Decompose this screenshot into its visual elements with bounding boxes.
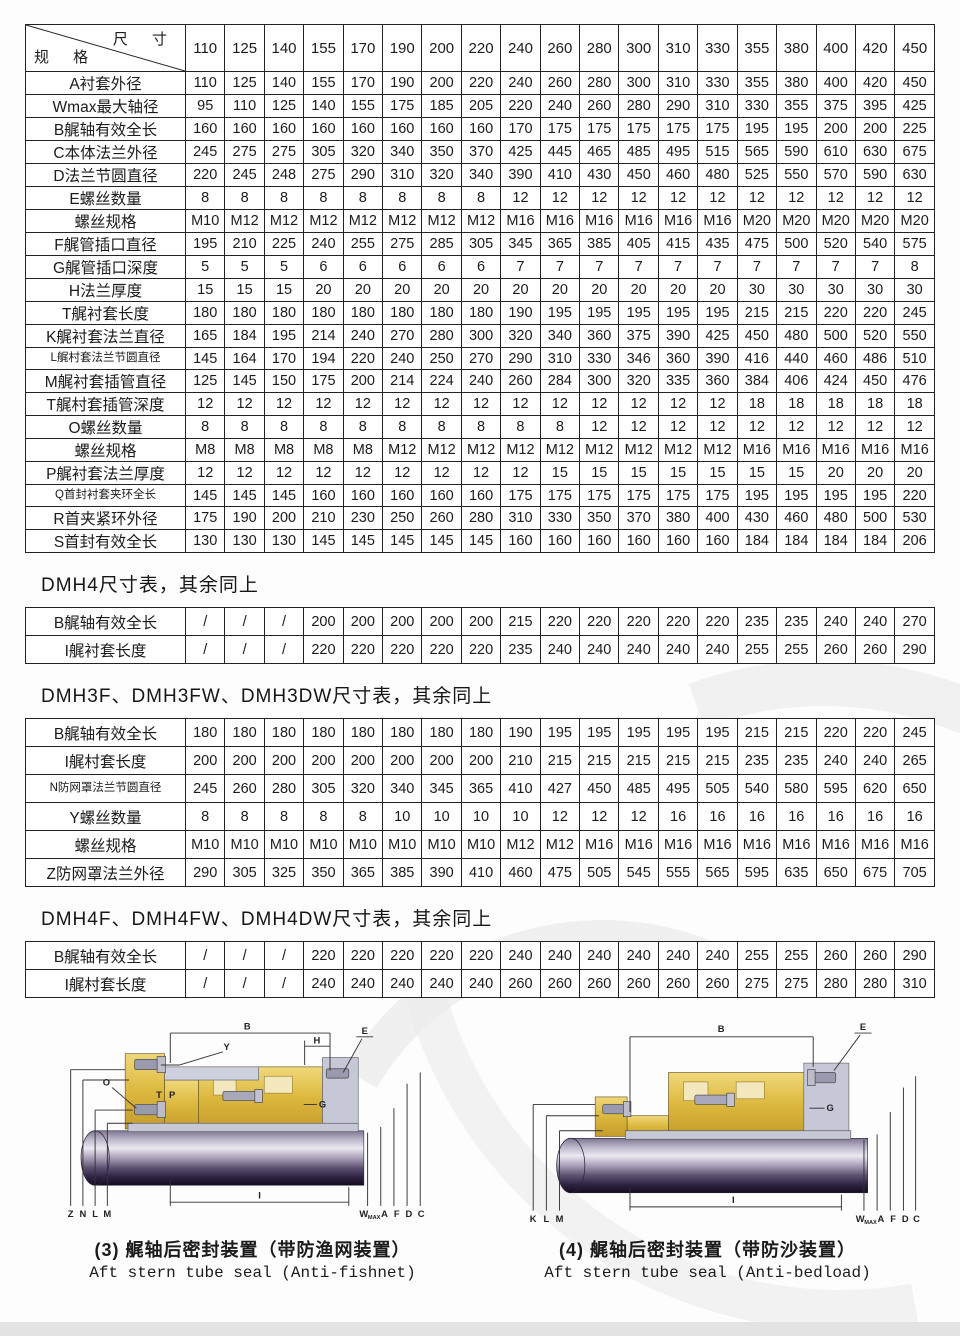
value-cell: 175 [186, 507, 225, 530]
value-cell: 20 [816, 462, 855, 485]
value-cell: 305 [304, 141, 343, 164]
size-column-header: 280 [580, 25, 619, 72]
value-cell: 310 [501, 507, 540, 530]
table-row: A衬套外径11012514015517019020022024026028030… [26, 72, 935, 95]
row-label: Z防网罩法兰外径 [26, 859, 186, 887]
value-cell: 214 [383, 370, 422, 393]
value-cell: 260 [501, 970, 540, 998]
value-cell: 240 [540, 942, 579, 970]
value-cell: 265 [895, 747, 935, 775]
value-cell: M12 [580, 439, 619, 462]
value-cell: 240 [343, 325, 382, 348]
value-cell: M16 [658, 831, 697, 859]
value-cell: 595 [737, 859, 776, 887]
value-cell: 375 [619, 325, 658, 348]
value-cell: 305 [225, 859, 264, 887]
value-cell: 195 [540, 719, 579, 747]
value-cell: 200 [343, 370, 382, 393]
value-cell: 300 [619, 72, 658, 95]
value-cell: 12 [895, 416, 935, 439]
value-cell: / [225, 970, 264, 998]
value-cell: 220 [343, 636, 382, 664]
value-cell: 175 [580, 118, 619, 141]
value-cell: 195 [698, 302, 737, 325]
value-cell: 8 [383, 187, 422, 210]
value-cell: M8 [264, 439, 303, 462]
table-row: L艉村套法兰节圆直径145164170194220240250270290310… [26, 348, 935, 370]
table-row: I艉村套长度2002002002002002002002002102152152… [26, 747, 935, 775]
value-cell: 610 [816, 141, 855, 164]
value-cell: 500 [816, 325, 855, 348]
value-cell: 460 [501, 859, 540, 887]
size-column-header: 110 [186, 25, 225, 72]
value-cell: 195 [737, 118, 776, 141]
value-cell: 160 [619, 530, 658, 553]
value-cell: 225 [264, 233, 303, 256]
value-cell: 180 [304, 302, 343, 325]
value-cell: M16 [698, 210, 737, 233]
value-cell: 160 [343, 118, 382, 141]
value-cell: 255 [737, 942, 776, 970]
value-cell: 200 [422, 747, 461, 775]
value-cell: 30 [895, 279, 935, 302]
value-cell: 475 [737, 233, 776, 256]
value-cell: 550 [777, 164, 816, 187]
value-cell: 525 [737, 164, 776, 187]
value-cell: 180 [225, 719, 264, 747]
value-cell: 215 [777, 302, 816, 325]
value-cell: 340 [540, 325, 579, 348]
value-cell: 555 [658, 859, 697, 887]
value-cell: 8 [304, 803, 343, 831]
label-G: G [319, 1098, 326, 1109]
value-cell: M20 [777, 210, 816, 233]
value-cell: 7 [698, 256, 737, 279]
value-cell: 245 [895, 719, 935, 747]
value-cell: 12 [304, 393, 343, 416]
value-cell: 280 [422, 325, 461, 348]
value-cell: 195 [737, 485, 776, 507]
corner-cell: 尺 寸规 格 [26, 25, 186, 72]
table-row: M艉衬套插管直径12514515017520021422424026028430… [26, 370, 935, 393]
value-cell: 8 [186, 416, 225, 439]
value-cell: / [264, 942, 303, 970]
size-column-header: 170 [343, 25, 382, 72]
value-cell: 415 [658, 233, 697, 256]
value-cell: 8 [540, 416, 579, 439]
value-cell: 12 [895, 187, 935, 210]
value-cell: M10 [186, 831, 225, 859]
row-label: F艉管插口直径 [26, 233, 186, 256]
size-column-header: 220 [461, 25, 500, 72]
value-cell: 460 [658, 164, 697, 187]
value-cell: 10 [501, 803, 540, 831]
value-cell: 12 [777, 187, 816, 210]
value-cell: 8 [422, 187, 461, 210]
value-cell: 12 [816, 416, 855, 439]
value-cell: 630 [895, 164, 935, 187]
table-row: I艉衬套长度///2202202202202202352402402402402… [26, 636, 935, 664]
value-cell: M8 [225, 439, 264, 462]
value-cell: M16 [619, 210, 658, 233]
value-cell: 200 [264, 507, 303, 530]
row-label: Wmax最大轴径 [26, 95, 186, 118]
value-cell: 365 [343, 859, 382, 887]
value-cell: 410 [540, 164, 579, 187]
label-C: C [418, 1208, 425, 1219]
value-cell: M16 [895, 831, 935, 859]
value-cell: 375 [816, 95, 855, 118]
caption-3-en: Aft stern tube seal (Anti-fishnet) [25, 1264, 480, 1282]
value-cell: 220 [383, 942, 422, 970]
row-label: O螺丝数量 [26, 416, 186, 439]
value-cell: 12 [580, 803, 619, 831]
value-cell: 200 [816, 118, 855, 141]
value-cell: 465 [580, 141, 619, 164]
value-cell: 12 [186, 462, 225, 485]
value-cell: 245 [186, 775, 225, 803]
value-cell: 260 [501, 370, 540, 393]
value-cell: 20 [304, 279, 343, 302]
value-cell: 260 [619, 970, 658, 998]
value-cell: 565 [737, 141, 776, 164]
value-cell: 12 [619, 187, 658, 210]
value-cell: 15 [186, 279, 225, 302]
value-cell: 520 [816, 233, 855, 256]
value-cell: 12 [580, 416, 619, 439]
value-cell: 220 [383, 636, 422, 664]
value-cell: 195 [658, 302, 697, 325]
value-cell: 240 [855, 747, 894, 775]
value-cell: 180 [264, 302, 303, 325]
value-cell: M10 [383, 831, 422, 859]
value-cell: 12 [540, 393, 579, 416]
size-column-header: 420 [855, 25, 894, 72]
value-cell: 220 [816, 302, 855, 325]
value-cell: 12 [619, 393, 658, 416]
value-cell: / [225, 942, 264, 970]
value-cell: 310 [658, 72, 697, 95]
value-cell: 12 [422, 462, 461, 485]
value-cell: 240 [658, 942, 697, 970]
value-cell: 260 [422, 507, 461, 530]
value-cell: 8 [304, 416, 343, 439]
row-label: M艉衬套插管直径 [26, 370, 186, 393]
value-cell: 160 [225, 118, 264, 141]
value-cell: 270 [895, 608, 935, 636]
value-cell: 305 [304, 775, 343, 803]
value-cell: 15 [698, 462, 737, 485]
value-cell: M16 [580, 210, 619, 233]
value-cell: 425 [501, 141, 540, 164]
value-cell: 12 [343, 462, 382, 485]
value-cell: 550 [895, 325, 935, 348]
value-cell: 220 [816, 719, 855, 747]
value-cell: 360 [580, 325, 619, 348]
row-label: B艉轴有效全长 [26, 118, 186, 141]
value-cell: 200 [225, 747, 264, 775]
row-label: L艉村套法兰节圆直径 [26, 348, 186, 370]
value-cell: 260 [658, 970, 697, 998]
value-cell: 460 [777, 507, 816, 530]
caption-4-zh: (4) 艉轴后密封装置（带防沙装置） [480, 1236, 935, 1262]
value-cell: 235 [501, 636, 540, 664]
value-cell: 240 [461, 970, 500, 998]
value-cell: 485 [619, 141, 658, 164]
value-cell: 390 [422, 859, 461, 887]
value-cell: 416 [737, 348, 776, 370]
value-cell: 476 [895, 370, 935, 393]
value-cell: 280 [580, 72, 619, 95]
row-label: B艉轴有效全长 [26, 719, 186, 747]
value-cell: 240 [816, 608, 855, 636]
value-cell: 395 [855, 95, 894, 118]
value-cell: 235 [777, 608, 816, 636]
value-cell: 240 [383, 348, 422, 370]
value-cell: 240 [580, 636, 619, 664]
value-cell: 240 [304, 970, 343, 998]
value-cell: M8 [304, 439, 343, 462]
value-cell: 12 [461, 393, 500, 416]
value-cell: 200 [304, 608, 343, 636]
label-Y: Y [224, 1041, 231, 1052]
column-header-row: 尺 寸规 格1101251401551701902002202402602803… [26, 25, 935, 72]
value-cell: 7 [619, 256, 658, 279]
value-cell: M12 [501, 439, 540, 462]
value-cell: 220 [186, 164, 225, 187]
value-cell: M12 [383, 439, 422, 462]
value-cell: 130 [225, 530, 264, 553]
row-label: S首封有效全长 [26, 530, 186, 553]
value-cell: / [264, 636, 303, 664]
value-cell: M10 [304, 831, 343, 859]
value-cell: 180 [422, 302, 461, 325]
value-cell: 140 [264, 72, 303, 95]
value-cell: 175 [501, 485, 540, 507]
value-cell: 7 [855, 256, 894, 279]
value-cell: 12 [855, 187, 894, 210]
row-label: Y螺丝数量 [26, 803, 186, 831]
size-column-header: 400 [816, 25, 855, 72]
value-cell: 180 [304, 719, 343, 747]
table-row: Z防网罩法兰外径29030532535036538539041046047550… [26, 859, 935, 887]
value-cell: 320 [422, 164, 461, 187]
value-cell: 255 [777, 636, 816, 664]
value-cell: 8 [343, 803, 382, 831]
value-cell: 160 [264, 118, 303, 141]
value-cell: 15 [658, 462, 697, 485]
value-cell: M12 [619, 439, 658, 462]
label-E: E [362, 1025, 368, 1036]
size-column-header: 260 [540, 25, 579, 72]
value-cell: 260 [540, 72, 579, 95]
value-cell: 400 [698, 507, 737, 530]
table-row: P艉衬套法兰厚度12121212121212121215151515151515… [26, 462, 935, 485]
value-cell: 350 [580, 507, 619, 530]
value-cell: M10 [225, 831, 264, 859]
label-F: F [890, 1213, 896, 1224]
value-cell: 510 [895, 348, 935, 370]
value-cell: 12 [422, 393, 461, 416]
row-label: D法兰节圆直径 [26, 164, 186, 187]
value-cell: 8 [264, 416, 303, 439]
value-cell: 8 [264, 803, 303, 831]
value-cell: 240 [855, 608, 894, 636]
value-cell: 220 [895, 485, 935, 507]
anti-bedload-drawing: B E G K L M I W MAX A F D C [480, 1018, 935, 1236]
value-cell: / [186, 942, 225, 970]
value-cell: 30 [855, 279, 894, 302]
value-cell: 200 [264, 747, 303, 775]
value-cell: 220 [304, 942, 343, 970]
value-cell: 305 [461, 233, 500, 256]
value-cell: 220 [540, 608, 579, 636]
value-cell: 18 [855, 393, 894, 416]
value-cell: 215 [540, 747, 579, 775]
value-cell: 6 [461, 256, 500, 279]
value-cell: 325 [264, 859, 303, 887]
value-cell: 8 [501, 416, 540, 439]
label-P: P [169, 1089, 175, 1100]
value-cell: 220 [461, 72, 500, 95]
value-cell: 170 [343, 72, 382, 95]
value-cell: 155 [304, 72, 343, 95]
value-cell: 175 [580, 485, 619, 507]
value-cell: 310 [540, 348, 579, 370]
value-cell: 260 [816, 942, 855, 970]
value-cell: 110 [186, 72, 225, 95]
value-cell: 5 [186, 256, 225, 279]
value-cell: 705 [895, 859, 935, 887]
value-cell: 220 [580, 608, 619, 636]
value-cell: 505 [580, 859, 619, 887]
value-cell: 430 [737, 507, 776, 530]
value-cell: M16 [501, 210, 540, 233]
value-cell: 180 [383, 302, 422, 325]
value-cell: 345 [501, 233, 540, 256]
value-cell: 18 [777, 393, 816, 416]
value-cell: 215 [777, 719, 816, 747]
value-cell: M12 [658, 439, 697, 462]
table-row: E螺丝数量888888881212121212121212121212 [26, 187, 935, 210]
value-cell: M12 [422, 439, 461, 462]
value-cell: 210 [304, 507, 343, 530]
value-cell: 290 [501, 348, 540, 370]
value-cell: 160 [383, 118, 422, 141]
value-cell: 12 [658, 393, 697, 416]
label-A: A [877, 1213, 884, 1224]
label-D: D [406, 1208, 413, 1219]
value-cell: 16 [895, 803, 935, 831]
value-cell: 175 [540, 485, 579, 507]
value-cell: 12 [816, 187, 855, 210]
label-K: K [530, 1213, 537, 1224]
diagram-anti-bedload: B E G K L M I W MAX A F D C [480, 1018, 935, 1282]
value-cell: 6 [343, 256, 382, 279]
value-cell: 346 [619, 348, 658, 370]
value-cell: 8 [895, 256, 935, 279]
value-cell: 245 [895, 302, 935, 325]
label-H: H [313, 1034, 320, 1045]
value-cell: M8 [343, 439, 382, 462]
row-label: R首夹紧环外径 [26, 507, 186, 530]
value-cell: 18 [816, 393, 855, 416]
value-cell: 200 [461, 747, 500, 775]
value-cell: 160 [343, 485, 382, 507]
value-cell: 200 [461, 608, 500, 636]
value-cell: M16 [855, 831, 894, 859]
label-M: M [103, 1208, 111, 1219]
value-cell: 7 [501, 256, 540, 279]
value-cell: 12 [540, 803, 579, 831]
caption-3-zh: (3) 艉轴后密封装置（带防渔网装置） [25, 1236, 480, 1262]
value-cell: 224 [422, 370, 461, 393]
caption-4-en: Aft stern tube seal (Anti-bedload) [480, 1264, 935, 1282]
value-cell: 180 [422, 719, 461, 747]
size-column-header: 355 [737, 25, 776, 72]
value-cell: 160 [383, 485, 422, 507]
value-cell: 240 [422, 970, 461, 998]
value-cell: 180 [343, 302, 382, 325]
row-label: H法兰厚度 [26, 279, 186, 302]
value-cell: 12 [225, 462, 264, 485]
value-cell: 245 [186, 141, 225, 164]
value-cell: M12 [540, 439, 579, 462]
value-cell: 194 [304, 348, 343, 370]
value-cell: 284 [540, 370, 579, 393]
size-column-header: 140 [264, 25, 303, 72]
dmh4-table: B艉轴有效全长///200200200200200215220220220220… [25, 607, 935, 664]
value-cell: 8 [461, 416, 500, 439]
value-cell: M16 [658, 210, 697, 233]
value-cell: / [186, 636, 225, 664]
value-cell: 12 [580, 187, 619, 210]
value-cell: 140 [304, 95, 343, 118]
value-cell: M16 [816, 831, 855, 859]
value-cell: 30 [816, 279, 855, 302]
value-cell: 12 [343, 393, 382, 416]
value-cell: 145 [304, 530, 343, 553]
value-cell: 165 [186, 325, 225, 348]
value-cell: 240 [501, 72, 540, 95]
table-row: N防网罩法兰节圆直径245260280305320340345365410427… [26, 775, 935, 803]
label-I: I [732, 1194, 735, 1205]
value-cell: 450 [895, 72, 935, 95]
value-cell: 16 [698, 803, 737, 831]
value-cell: M20 [895, 210, 935, 233]
value-cell: 475 [540, 859, 579, 887]
value-cell: M12 [461, 439, 500, 462]
value-cell: 170 [501, 118, 540, 141]
value-cell: 220 [698, 608, 737, 636]
value-cell: 130 [264, 530, 303, 553]
value-cell: 180 [186, 302, 225, 325]
value-cell: 12 [698, 416, 737, 439]
value-cell: 175 [383, 95, 422, 118]
value-cell: 220 [658, 608, 697, 636]
value-cell: M12 [225, 210, 264, 233]
value-cell: 255 [777, 942, 816, 970]
value-cell: 365 [461, 775, 500, 803]
value-cell: 12 [777, 416, 816, 439]
value-cell: 280 [264, 775, 303, 803]
dmh3f-table: B艉轴有效全长180180180180180180180180190195195… [25, 718, 935, 887]
size-column-header: 240 [501, 25, 540, 72]
value-cell: 5 [264, 256, 303, 279]
value-cell: 460 [816, 348, 855, 370]
value-cell: 495 [658, 141, 697, 164]
value-cell: 195 [658, 719, 697, 747]
